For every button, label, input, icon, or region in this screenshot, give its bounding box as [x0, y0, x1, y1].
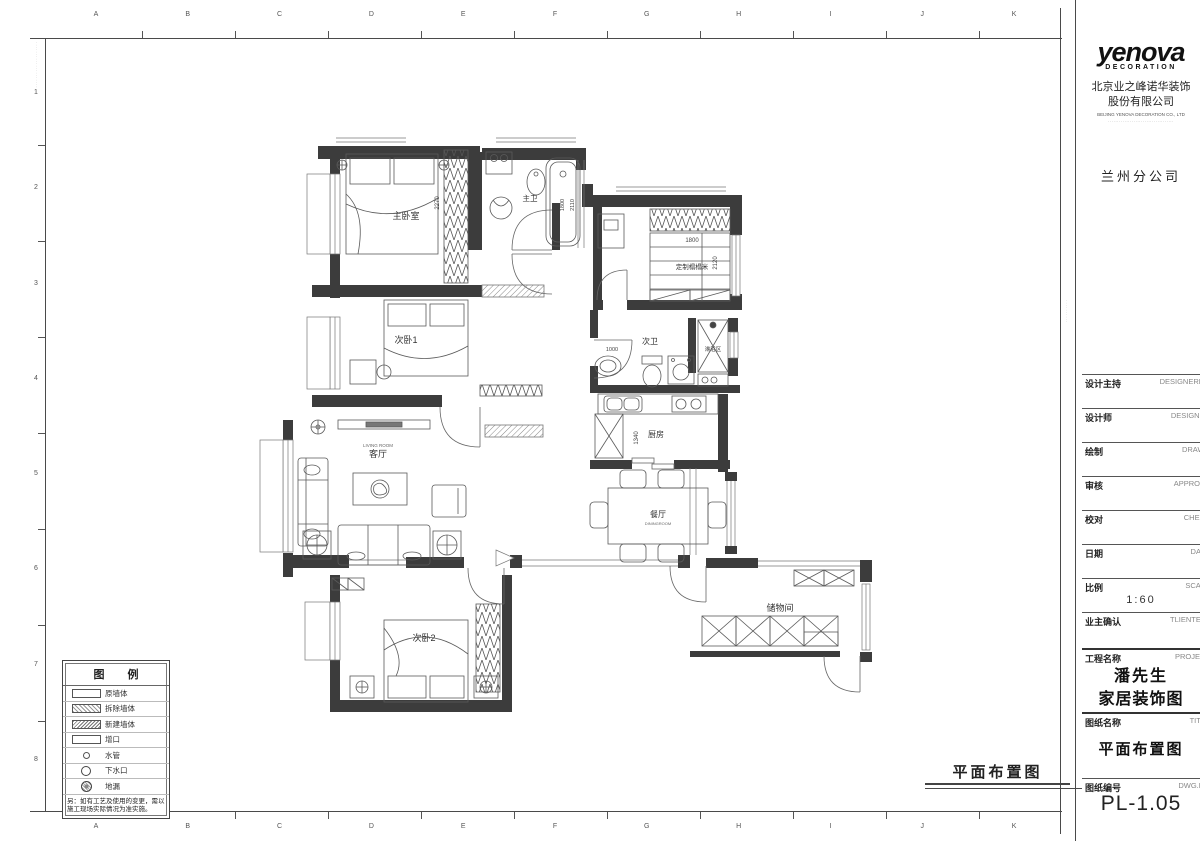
- room-label-bedroom2: 次卧2: [412, 632, 435, 643]
- grid-letter: I: [785, 823, 877, 830]
- gutter-micro-text: ··········: [1064, 300, 1069, 323]
- grid-letter: F: [509, 11, 601, 18]
- field-label-cn: 审核: [1082, 479, 1103, 492]
- shower-icon: [698, 320, 728, 372]
- grid-letter: A: [50, 11, 142, 18]
- side-table-icon: [433, 531, 461, 559]
- legend-label: 地漏: [105, 781, 120, 792]
- room-label-dining: 餐厅: [650, 510, 666, 519]
- closet-tatami-icon: [650, 209, 730, 231]
- field-label-cn: 设计主持: [1082, 377, 1121, 390]
- armchair-icon: [432, 485, 466, 517]
- dim-tub-l: 2110: [570, 199, 576, 211]
- scale-value: 1:60: [1082, 594, 1200, 606]
- field-label-en: TLIENTELE: [1170, 615, 1200, 624]
- grid-number: 2: [30, 140, 42, 235]
- grid-letter: D: [325, 823, 417, 830]
- company-name-cn: 北京业之峰诺华装饰 股份有限公司: [1082, 80, 1200, 110]
- legend-label: 新建墙体: [105, 719, 135, 730]
- field-label-en: PROJECT: [1175, 652, 1200, 661]
- grid-number: 4: [30, 331, 42, 426]
- grid-number: 6: [30, 521, 42, 616]
- grid-letter: J: [876, 11, 968, 18]
- frame-right-line-1: [1060, 8, 1061, 834]
- grid-letter: D: [325, 11, 417, 18]
- legend-item: 下水口: [63, 764, 169, 780]
- bed-master-icon: [346, 154, 438, 254]
- frame-top-line: [30, 38, 1062, 39]
- room-label-tatami: 定制榻榻米: [676, 262, 709, 271]
- field-label-cn: 比例: [1082, 581, 1103, 594]
- field-label-cn: 日期: [1082, 547, 1103, 560]
- legend-item: 新建墙体: [63, 717, 169, 733]
- company-name-en: BEIJING YENOVA DECORATION CO., LTD: [1082, 112, 1200, 117]
- caption-underline: [925, 783, 1070, 785]
- tv-cabinet-icon: [338, 420, 430, 429]
- grid-numbers-left: 12345678: [30, 45, 42, 807]
- sink-icon: [490, 197, 512, 219]
- title-block: yenova DECORATION 北京业之峰诺华装饰 股份有限公司 BEIJI…: [1082, 0, 1200, 841]
- grid-ticks-bottom: [50, 812, 1060, 819]
- room-label-bath2: 次卫: [642, 336, 658, 346]
- field-label-cn: 绘制: [1082, 445, 1103, 458]
- wardrobe-bed2-icon: [476, 604, 500, 692]
- grid-letter: H: [693, 11, 785, 18]
- dim-tatami-l: 2120: [713, 256, 719, 270]
- grid-letter: J: [876, 823, 968, 830]
- room-labels: 主卧室 主卫 定制榻榻米 次卧1 次卫 淋浴区 厨房 LIVING ROOM 客…: [363, 193, 794, 643]
- grid-number: 5: [30, 426, 42, 521]
- dim-tub-w: 1800: [560, 199, 566, 211]
- drain-outlet-symbol: [67, 766, 105, 776]
- wall-original-symbol: [67, 689, 105, 698]
- grid-letter: F: [509, 823, 601, 830]
- toilet-icon: [527, 169, 545, 195]
- legend-item: 原墙体: [63, 686, 169, 702]
- project-value-1: 潘先生: [1082, 662, 1200, 686]
- floor-drain-symbol: [67, 781, 105, 792]
- grid-letter: C: [234, 823, 326, 830]
- opening-symbol: [67, 735, 105, 744]
- grid-letter: C: [234, 11, 326, 18]
- dim-bath2-door: 1000: [606, 347, 618, 353]
- grid-letter: B: [142, 823, 234, 830]
- margin-micro-text: ·····················: [34, 42, 39, 91]
- ceiling-fan-icon: [311, 420, 325, 434]
- company-cn-line2: 股份有限公司: [1082, 95, 1200, 110]
- branch-name: 兰州分公司: [1082, 166, 1200, 185]
- wall-demolish-symbol: [67, 704, 105, 713]
- grid-letter: H: [693, 823, 785, 830]
- field-label-en: DESIGNERHO: [1160, 377, 1200, 386]
- room-label-dining-en: DININGROOM: [645, 521, 671, 526]
- toilet-icon: [642, 356, 662, 387]
- field-drawing-title: 图纸名称 TITLE: [1082, 712, 1200, 729]
- dim-master-closet: 2270: [435, 196, 441, 210]
- furniture: [298, 150, 854, 702]
- grid-letter: K: [968, 823, 1060, 830]
- dim-kitchen-w: 1340: [634, 431, 640, 445]
- room-label-master-bath: 主卫: [523, 193, 538, 203]
- cabinet-icon: [650, 290, 730, 301]
- kitchen-counter-icon: [598, 394, 718, 414]
- field-scale: 比例 SCALE: [1082, 578, 1200, 594]
- legend-label: 原墙体: [105, 688, 128, 699]
- field-drawn: 绘制 DRAWN: [1082, 442, 1200, 458]
- grid-letter: E: [417, 11, 509, 18]
- room-label-master-bedroom: 主卧室: [392, 210, 419, 221]
- grid-number: 3: [30, 236, 42, 331]
- grid-number: 7: [30, 617, 42, 712]
- hatched-walls: [482, 285, 544, 437]
- field-approve: 审核 APPROVE: [1082, 476, 1200, 492]
- room-label-storage: 储物间: [766, 602, 793, 613]
- wardrobe-bed1-icon: [480, 385, 542, 396]
- grid-ticks-top: [50, 31, 1060, 38]
- grid-letter: I: [785, 11, 877, 18]
- legend-label: 水管: [105, 750, 120, 761]
- frame-right-line-2: [1075, 0, 1076, 841]
- frame-left-line: [45, 38, 46, 811]
- coffee-table-icon: [353, 473, 407, 505]
- wall-new-symbol: [67, 720, 105, 729]
- field-client-confirm: 业主确认 TLIENTELE: [1082, 612, 1200, 628]
- grid-letter: A: [50, 823, 142, 830]
- project-value-2: 家居装饰图: [1082, 685, 1200, 709]
- desk-chair-icon: [350, 360, 391, 384]
- company-cn-line1: 北京业之峰诺华装饰: [1082, 80, 1200, 95]
- grid-letter: G: [601, 11, 693, 18]
- field-designer-host: 设计主持 DESIGNERHO: [1082, 374, 1200, 390]
- grid-letter: B: [142, 11, 234, 18]
- field-label-en: CHECK: [1184, 513, 1200, 522]
- floor-plan: 主卧室 主卫 定制榻榻米 次卧1 次卫 淋浴区 厨房 LIVING ROOM 客…: [246, 108, 896, 730]
- company-address-micro: ····································: [1082, 119, 1200, 124]
- field-label-en: APPROVE: [1174, 479, 1200, 488]
- field-label-en: DESIGNER: [1171, 411, 1200, 420]
- grid-number: 8: [30, 712, 42, 807]
- grid-letters-bottom: ABCDEFGHIJK: [50, 823, 1060, 830]
- room-label-shower: 淋浴区: [705, 345, 722, 353]
- grid-letter: E: [417, 823, 509, 830]
- logo: yenova DECORATION: [1082, 40, 1200, 71]
- shower-cabinet-icon: [698, 374, 728, 386]
- shaft-icon: [595, 414, 623, 458]
- dim-tatami-w: 1800: [685, 238, 699, 244]
- caption-underline-2: [925, 788, 1085, 789]
- legend-box: 图 例 原墙体 拆除墙体 新建墙体 增口 水管 下水口 地漏 另：如有: [62, 660, 170, 819]
- room-label-bedroom1: 次卧1: [394, 334, 417, 345]
- field-label-en: TITLE: [1190, 716, 1200, 725]
- field-designer: 设计师 DESIGNER: [1082, 408, 1200, 424]
- field-date: 日期 DATE: [1082, 544, 1200, 560]
- legend-item: 地漏: [63, 779, 169, 795]
- sheet-caption: 平面布置图: [925, 761, 1070, 782]
- wardrobe-master-icon: [444, 150, 468, 283]
- field-label-cn: 设计师: [1082, 411, 1112, 424]
- legend-label: 拆除墙体: [105, 703, 135, 714]
- field-label-cn: 业主确认: [1082, 615, 1121, 628]
- legend-title: 图 例: [63, 661, 169, 686]
- legend-item: 增口: [63, 733, 169, 749]
- field-label-en: DATE: [1191, 547, 1200, 556]
- sink-icon: [595, 356, 621, 376]
- legend-item: 拆除墙体: [63, 702, 169, 718]
- grid-letters-top: ABCDEFGHIJK: [50, 11, 1060, 18]
- grid-letter: K: [968, 11, 1060, 18]
- field-label-cn: 校对: [1082, 513, 1103, 526]
- legend-note: 另：如有工艺及使用的变更，需以施工现场实际情况为准实施。: [63, 795, 169, 818]
- field-label-en: DWG.NO: [1178, 781, 1200, 790]
- legend-item: 水管: [63, 748, 169, 764]
- legend-label: 下水口: [105, 765, 128, 776]
- drawing-title-value: 平面布置图: [1082, 738, 1200, 759]
- drawing-number-value: PL-1.05: [1082, 792, 1200, 816]
- legend-label: 增口: [105, 734, 120, 745]
- water-pipe-symbol: [67, 752, 105, 759]
- room-label-living-en: LIVING ROOM: [363, 443, 393, 448]
- nightstand-icon: [350, 676, 374, 698]
- room-label-kitchen: 厨房: [648, 429, 664, 439]
- drawing-sheet: ABCDEFGHIJK ABCDEFGHIJK 12345678 ·······…: [0, 0, 1200, 841]
- field-label-en: DRAWN: [1182, 445, 1200, 454]
- field-label-en: SCALE: [1185, 581, 1200, 590]
- logo-text: yenova: [1082, 40, 1200, 64]
- sofa-side-icon: [298, 458, 328, 546]
- grid-letter: G: [601, 823, 693, 830]
- field-check: 校对 CHECK: [1082, 510, 1200, 526]
- field-label-cn: 图纸名称: [1082, 716, 1121, 729]
- room-label-living: 客厅: [369, 448, 387, 459]
- side-table-icon: [303, 531, 331, 559]
